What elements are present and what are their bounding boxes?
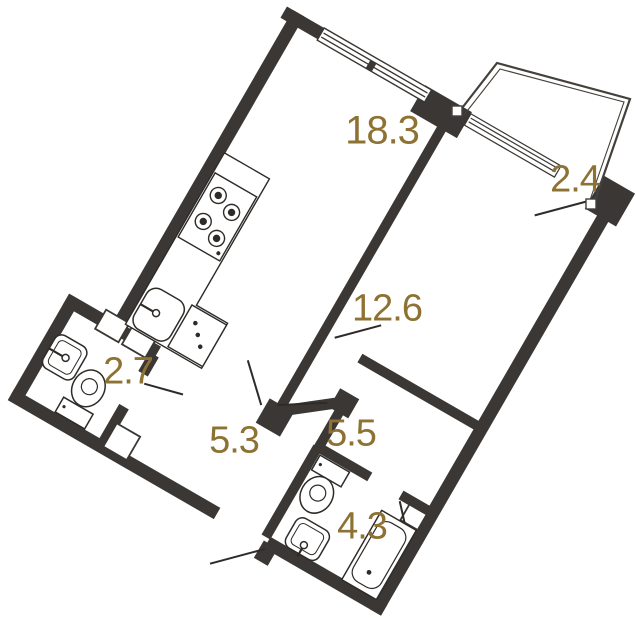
hall-door-leaf-west <box>232 360 277 405</box>
bedroom-window <box>464 114 561 177</box>
floor-plan-page: 18.3 2.4 12.6 2.7 5.3 5.5 4.3 <box>0 0 636 640</box>
room-label-balcony: 2.4 <box>550 159 600 202</box>
room-label-bathroom: 4.3 <box>337 506 387 549</box>
living-room-window <box>317 28 431 102</box>
floor-plan-drawing <box>0 0 636 640</box>
room-label-living-kitchen: 18.3 <box>345 109 419 154</box>
door-leaves <box>83 52 599 640</box>
room-label-inner-hallway: 5.5 <box>326 413 376 456</box>
room-label-hallway: 5.3 <box>209 420 259 463</box>
room-label-wc: 2.7 <box>103 351 153 394</box>
room-label-bedroom: 12.6 <box>352 288 422 331</box>
